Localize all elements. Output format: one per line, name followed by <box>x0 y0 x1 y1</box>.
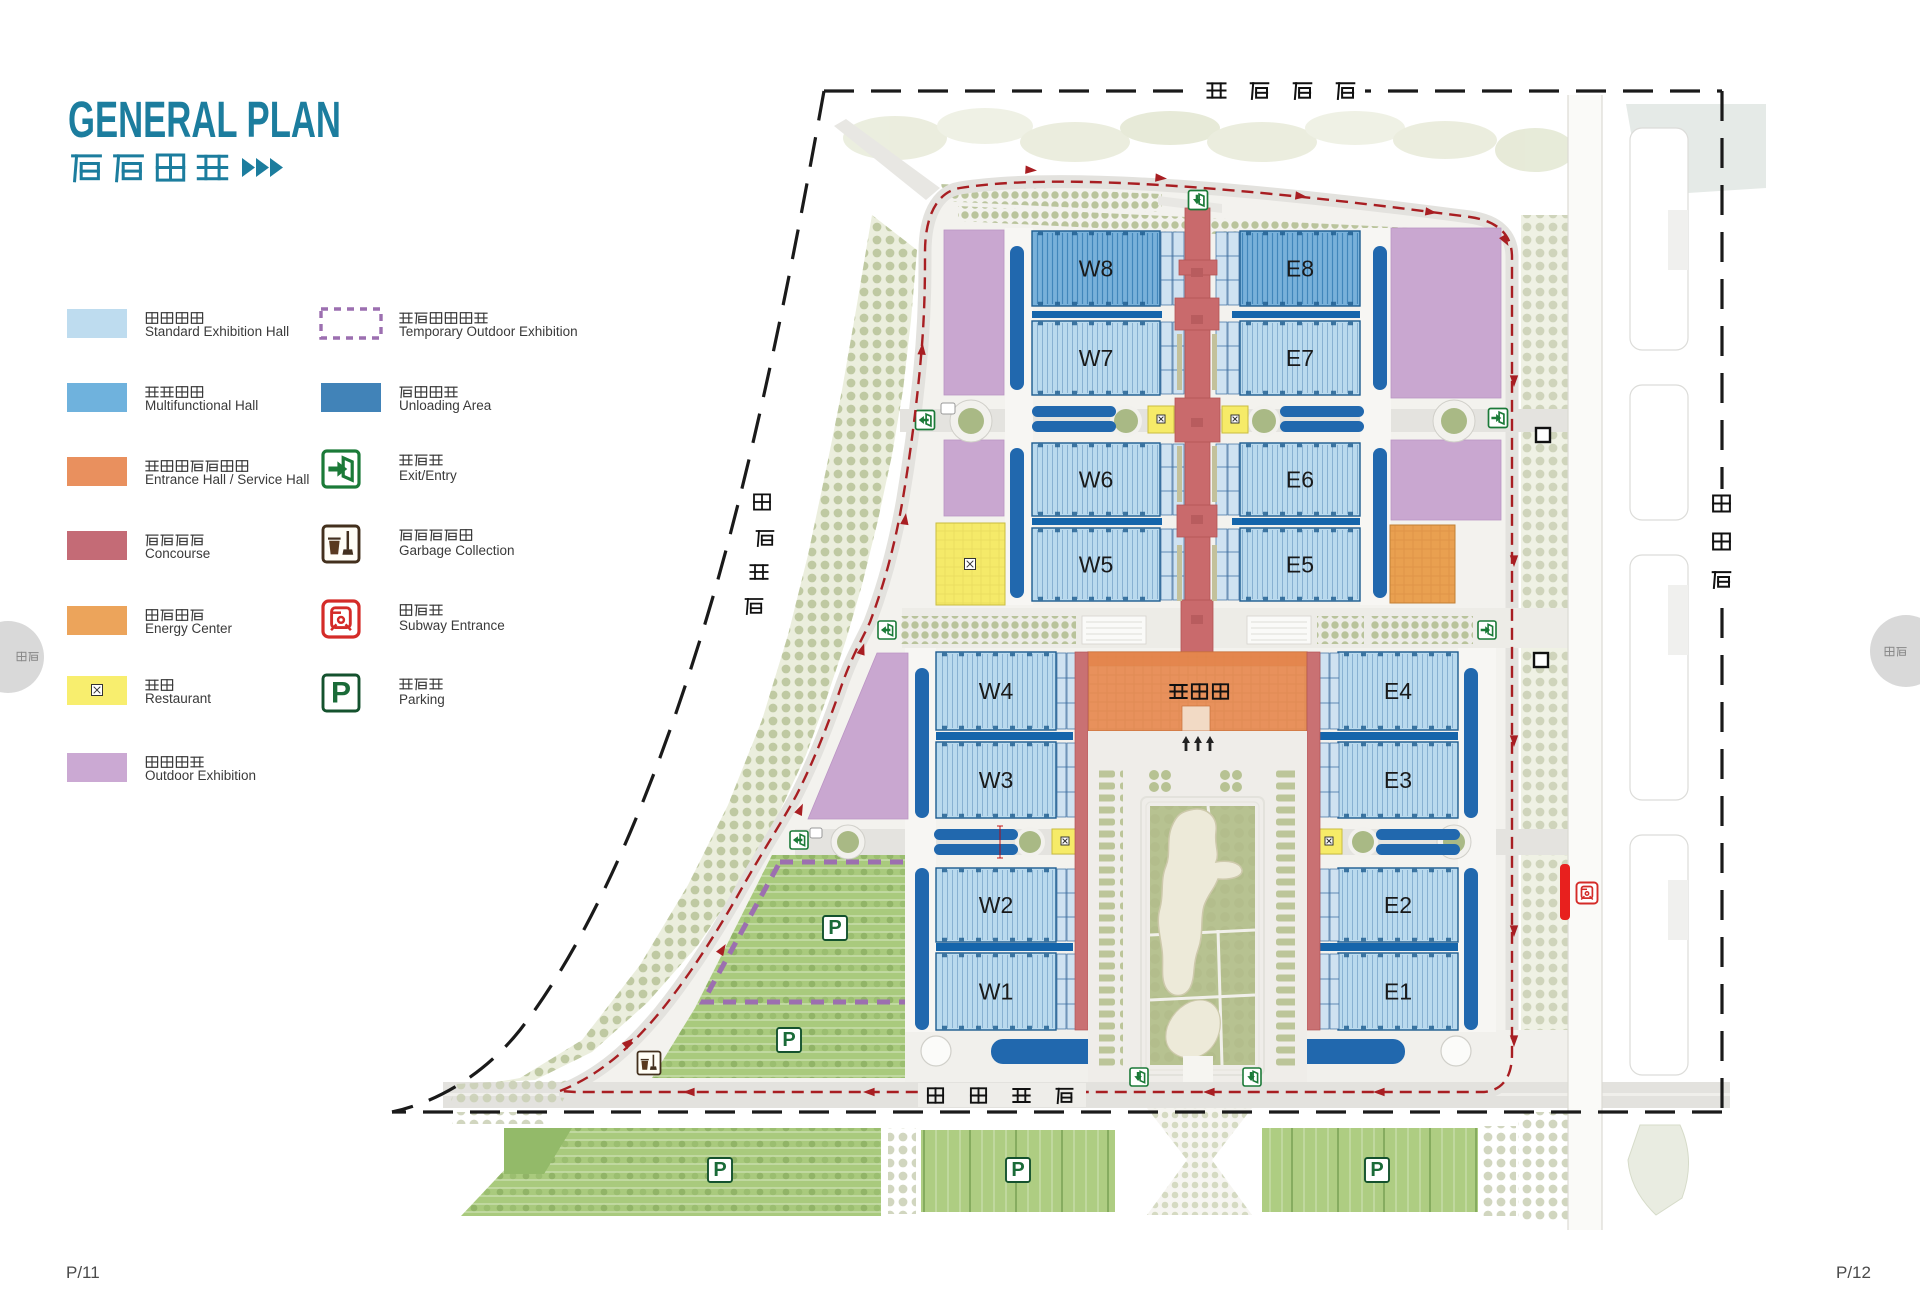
svg-text:Standard Exhibition Hall: Standard Exhibition Hall <box>145 324 289 339</box>
svg-text:P: P <box>1370 1159 1383 1181</box>
svg-text:P/12: P/12 <box>1836 1263 1871 1282</box>
svg-text:E6: E6 <box>1286 467 1314 493</box>
svg-text:Exit/Entry: Exit/Entry <box>399 468 457 483</box>
svg-text:W5: W5 <box>1079 552 1114 578</box>
svg-text:E4: E4 <box>1384 678 1412 704</box>
svg-text:P: P <box>828 917 841 939</box>
svg-text:Parking: Parking <box>399 692 445 707</box>
svg-text:GENERAL PLAN: GENERAL PLAN <box>68 93 341 149</box>
svg-text:E7: E7 <box>1286 345 1314 371</box>
svg-text:W8: W8 <box>1079 256 1114 282</box>
svg-text:W2: W2 <box>979 892 1014 918</box>
svg-text:E8: E8 <box>1286 256 1314 282</box>
svg-text:P: P <box>782 1029 795 1051</box>
svg-text:W6: W6 <box>1079 467 1114 493</box>
svg-text:Entrance Hall / Service Hall: Entrance Hall / Service Hall <box>145 472 309 487</box>
svg-text:Outdoor Exhibition: Outdoor Exhibition <box>145 768 256 783</box>
svg-text:P: P <box>331 676 351 709</box>
svg-text:W4: W4 <box>979 678 1014 704</box>
svg-text:E2: E2 <box>1384 892 1412 918</box>
svg-text:Energy Center: Energy Center <box>145 621 233 636</box>
svg-text:P: P <box>1011 1159 1024 1181</box>
svg-text:Restaurant: Restaurant <box>145 691 211 706</box>
svg-text:Multifunctional Hall: Multifunctional Hall <box>145 398 258 413</box>
svg-text:W3: W3 <box>979 767 1014 793</box>
svg-text:E3: E3 <box>1384 767 1412 793</box>
svg-text:Subway Entrance: Subway Entrance <box>399 618 505 633</box>
svg-text:W1: W1 <box>979 979 1014 1005</box>
svg-text:E1: E1 <box>1384 979 1412 1005</box>
svg-text:Garbage Collection: Garbage Collection <box>399 543 515 558</box>
svg-text:P/11: P/11 <box>66 1263 100 1282</box>
svg-text:Unloading Area: Unloading Area <box>399 398 492 413</box>
svg-text:W7: W7 <box>1079 345 1114 371</box>
svg-text:Temporary Outdoor Exhibition: Temporary Outdoor Exhibition <box>399 324 578 339</box>
svg-text:E5: E5 <box>1286 552 1314 578</box>
svg-text:Concourse: Concourse <box>145 546 210 561</box>
svg-text:P: P <box>713 1159 726 1181</box>
